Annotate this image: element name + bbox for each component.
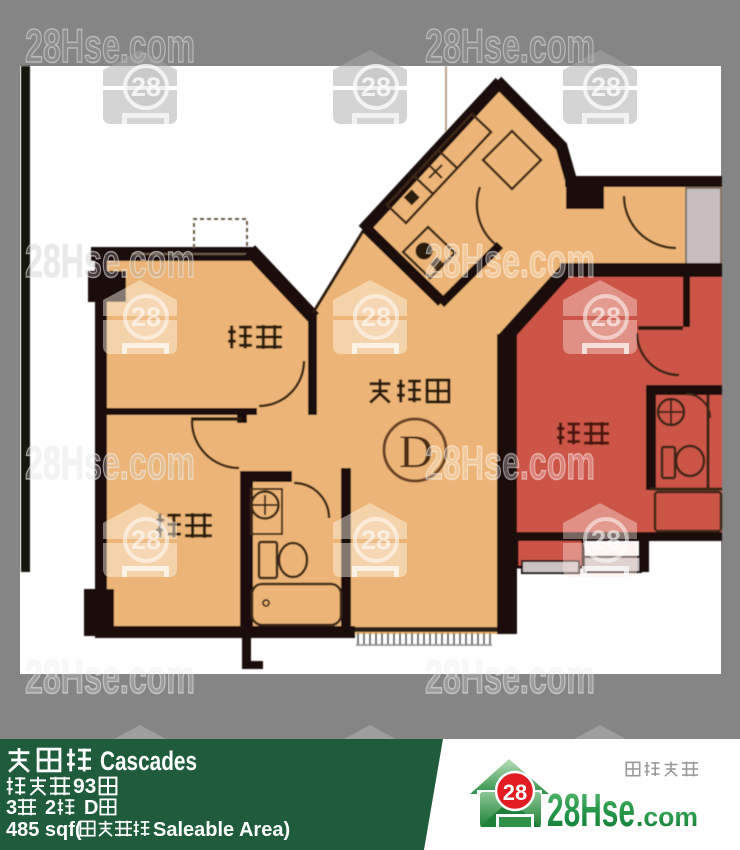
svg-text:28: 28 — [361, 525, 391, 555]
svg-text:D: D — [84, 797, 98, 819]
svg-text:28: 28 — [503, 780, 527, 805]
svg-text:28: 28 — [591, 302, 621, 332]
svg-text:28: 28 — [591, 525, 621, 555]
svg-text:Cascades: Cascades — [100, 746, 197, 776]
svg-text:28: 28 — [131, 72, 161, 102]
svg-text:28Hse.com: 28Hse.com — [25, 436, 195, 489]
svg-text:2: 2 — [45, 797, 56, 819]
svg-text:28: 28 — [131, 302, 161, 332]
svg-text:93: 93 — [73, 775, 96, 798]
svg-text:28Hse.com: 28Hse.com — [425, 19, 595, 72]
svg-text:28: 28 — [591, 72, 621, 102]
svg-text:28: 28 — [361, 302, 391, 332]
svg-text:28Hse.com: 28Hse.com — [25, 234, 195, 287]
svg-text:28Hse.com: 28Hse.com — [425, 234, 595, 287]
svg-text:28: 28 — [131, 525, 161, 555]
svg-text:485 sqf(: 485 sqf( — [6, 819, 82, 841]
svg-text:28Hse.com: 28Hse.com — [25, 650, 195, 703]
svg-text:Saleable Area): Saleable Area) — [153, 819, 290, 841]
svg-text:.com: .com — [636, 802, 698, 832]
svg-text:28Hse.com: 28Hse.com — [425, 436, 595, 489]
svg-text:28Hse: 28Hse — [547, 784, 635, 836]
svg-text:3: 3 — [6, 797, 17, 819]
svg-text:28: 28 — [361, 72, 391, 102]
svg-text:28Hse.com: 28Hse.com — [25, 19, 195, 72]
svg-text:28Hse.com: 28Hse.com — [425, 650, 595, 703]
